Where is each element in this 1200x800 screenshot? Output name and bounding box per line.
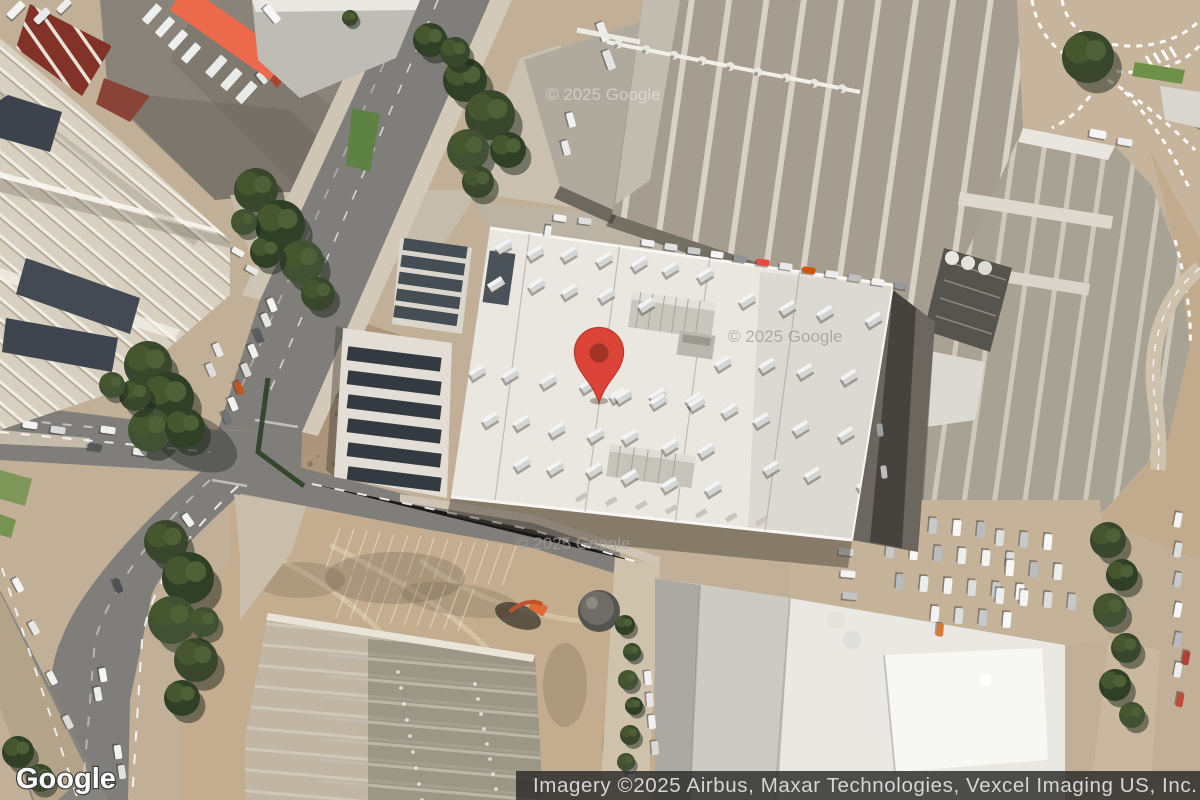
svg-text:Google: Google — [16, 763, 116, 795]
svg-text:© 2025 Google: © 2025 Google — [728, 327, 843, 346]
svg-text:© 2025 Google: © 2025 Google — [546, 85, 661, 104]
svg-text:Imagery ©2025 Airbus, Maxar Te: Imagery ©2025 Airbus, Maxar Technologies… — [533, 774, 1198, 797]
svg-text:© 2025 Google: © 2025 Google — [516, 534, 631, 553]
